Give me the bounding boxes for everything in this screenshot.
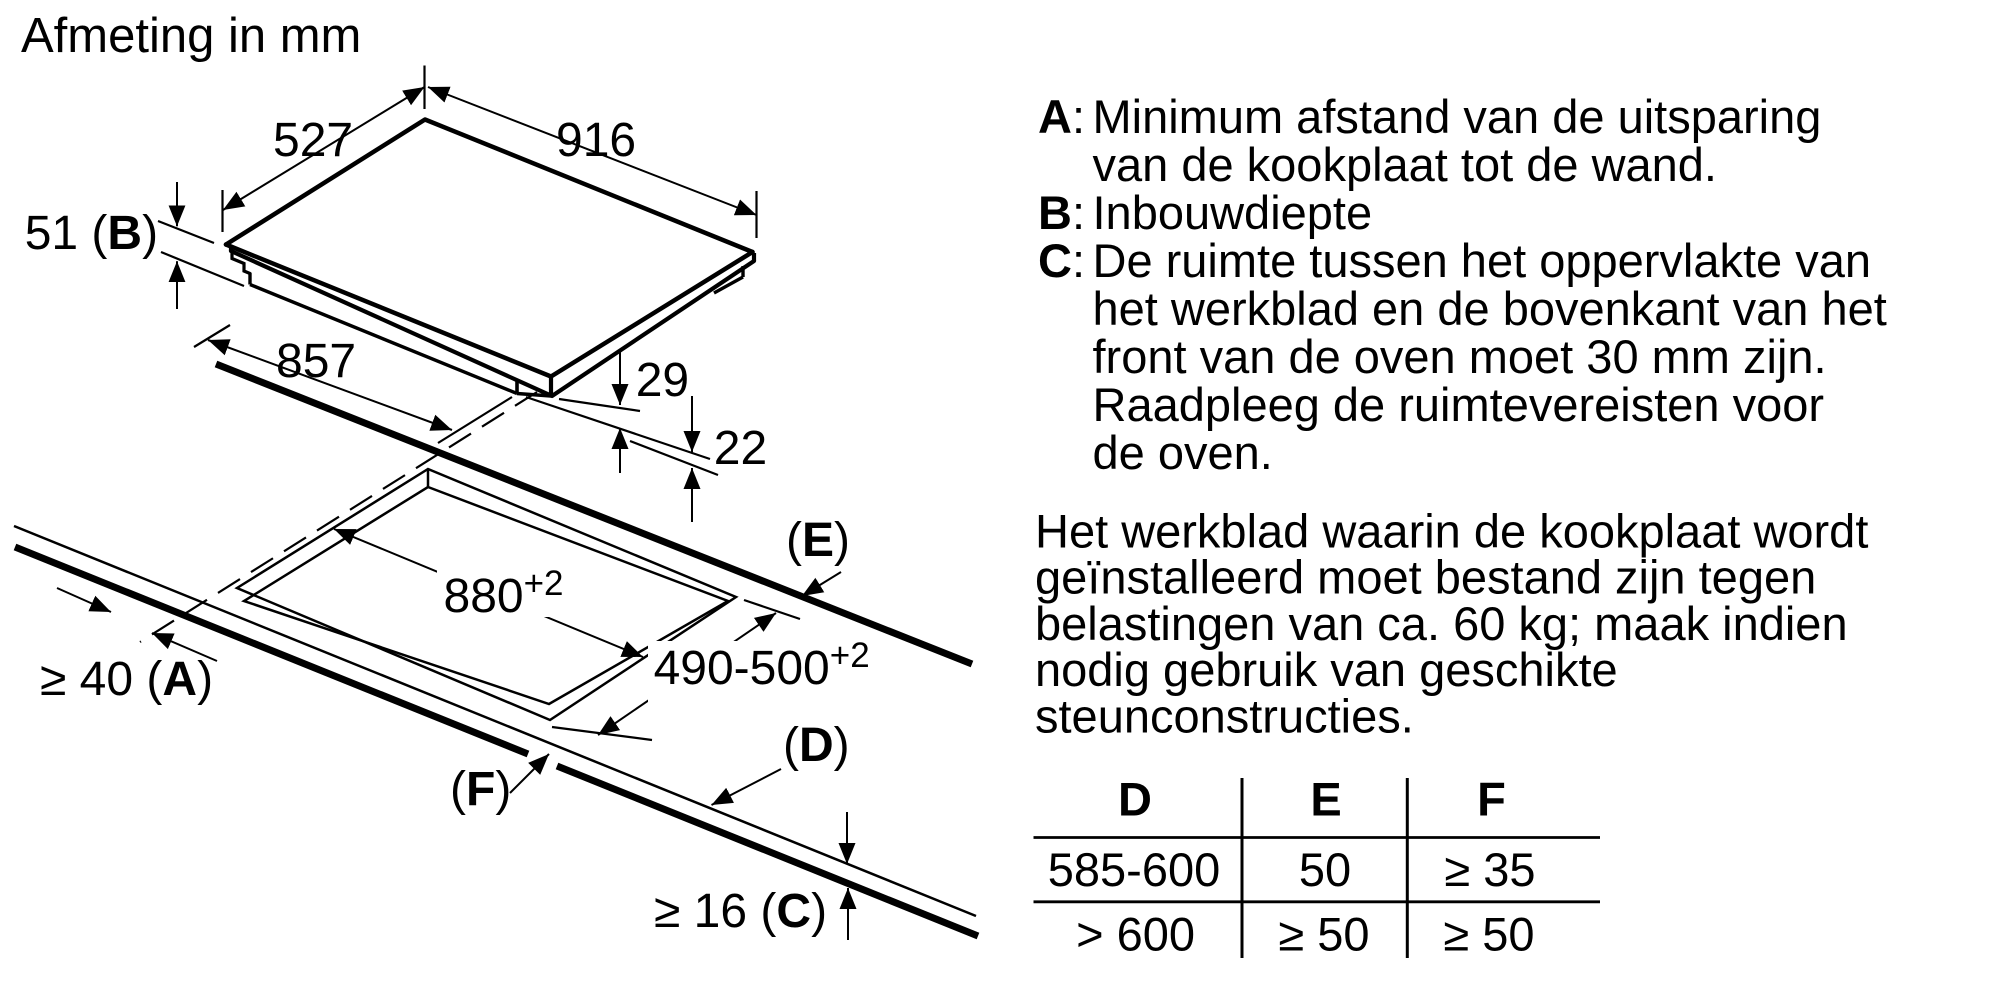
svg-text:Inbouwdiepte: Inbouwdiepte bbox=[1093, 186, 1373, 239]
svg-text:De ruimte tussen het oppervlak: De ruimte tussen het oppervlakte van bbox=[1093, 234, 1872, 287]
svg-text:het werkblad en de bovenkant v: het werkblad en de bovenkant van het bbox=[1093, 282, 1887, 335]
svg-text:E: E bbox=[1310, 773, 1341, 826]
svg-text:Afmeting in mm: Afmeting in mm bbox=[21, 9, 361, 63]
svg-text:van de kookplaat tot de wand.: van de kookplaat tot de wand. bbox=[1093, 138, 1718, 191]
svg-text:857: 857 bbox=[276, 335, 356, 388]
svg-text:≥ 50: ≥ 50 bbox=[1443, 908, 1534, 961]
svg-text:nodig gebruik van geschikte: nodig gebruik van geschikte bbox=[1035, 643, 1618, 696]
svg-text:916: 916 bbox=[556, 114, 636, 167]
svg-text:527: 527 bbox=[273, 114, 353, 167]
svg-text:Het werkblad waarin de kookpla: Het werkblad waarin de kookplaat wordt bbox=[1035, 504, 1868, 557]
svg-text:≥ 16 (C): ≥ 16 (C) bbox=[654, 885, 827, 938]
svg-text:585-600: 585-600 bbox=[1048, 843, 1221, 896]
svg-text:≥ 40 (A): ≥ 40 (A) bbox=[40, 653, 213, 706]
svg-text:geïnstalleerd moet bestand zij: geïnstalleerd moet bestand zijn tegen bbox=[1035, 551, 1816, 604]
svg-text:50: 50 bbox=[1299, 843, 1351, 896]
svg-text:steunconstructies.: steunconstructies. bbox=[1035, 690, 1414, 743]
svg-text:D: D bbox=[1118, 773, 1152, 826]
svg-text:22: 22 bbox=[714, 422, 767, 475]
svg-text:(F): (F) bbox=[450, 763, 511, 816]
svg-text:> 600: > 600 bbox=[1076, 908, 1195, 961]
svg-text:Minimum afstand van de uitspar: Minimum afstand van de uitsparing bbox=[1093, 90, 1822, 143]
svg-text:(E): (E) bbox=[786, 514, 850, 567]
svg-text:F: F bbox=[1477, 773, 1506, 826]
svg-text:B:: B: bbox=[1038, 186, 1085, 239]
svg-text:Raadpleeg de ruimtevereisten v: Raadpleeg de ruimtevereisten voor bbox=[1093, 378, 1825, 431]
svg-text:front van de oven moet 30 mm z: front van de oven moet 30 mm zijn. bbox=[1093, 330, 1827, 383]
svg-text:≥ 35: ≥ 35 bbox=[1444, 843, 1535, 896]
svg-text:51 (B): 51 (B) bbox=[25, 207, 158, 260]
svg-text:de oven.: de oven. bbox=[1093, 426, 1273, 479]
svg-text:belastingen van ca. 60 kg; maa: belastingen van ca. 60 kg; maak indien bbox=[1035, 597, 1848, 650]
svg-text:A:: A: bbox=[1038, 90, 1085, 143]
svg-text:C:: C: bbox=[1038, 234, 1085, 287]
svg-text:(D): (D) bbox=[783, 719, 850, 772]
svg-text:≥ 50: ≥ 50 bbox=[1278, 908, 1369, 961]
svg-text:29: 29 bbox=[636, 354, 689, 407]
